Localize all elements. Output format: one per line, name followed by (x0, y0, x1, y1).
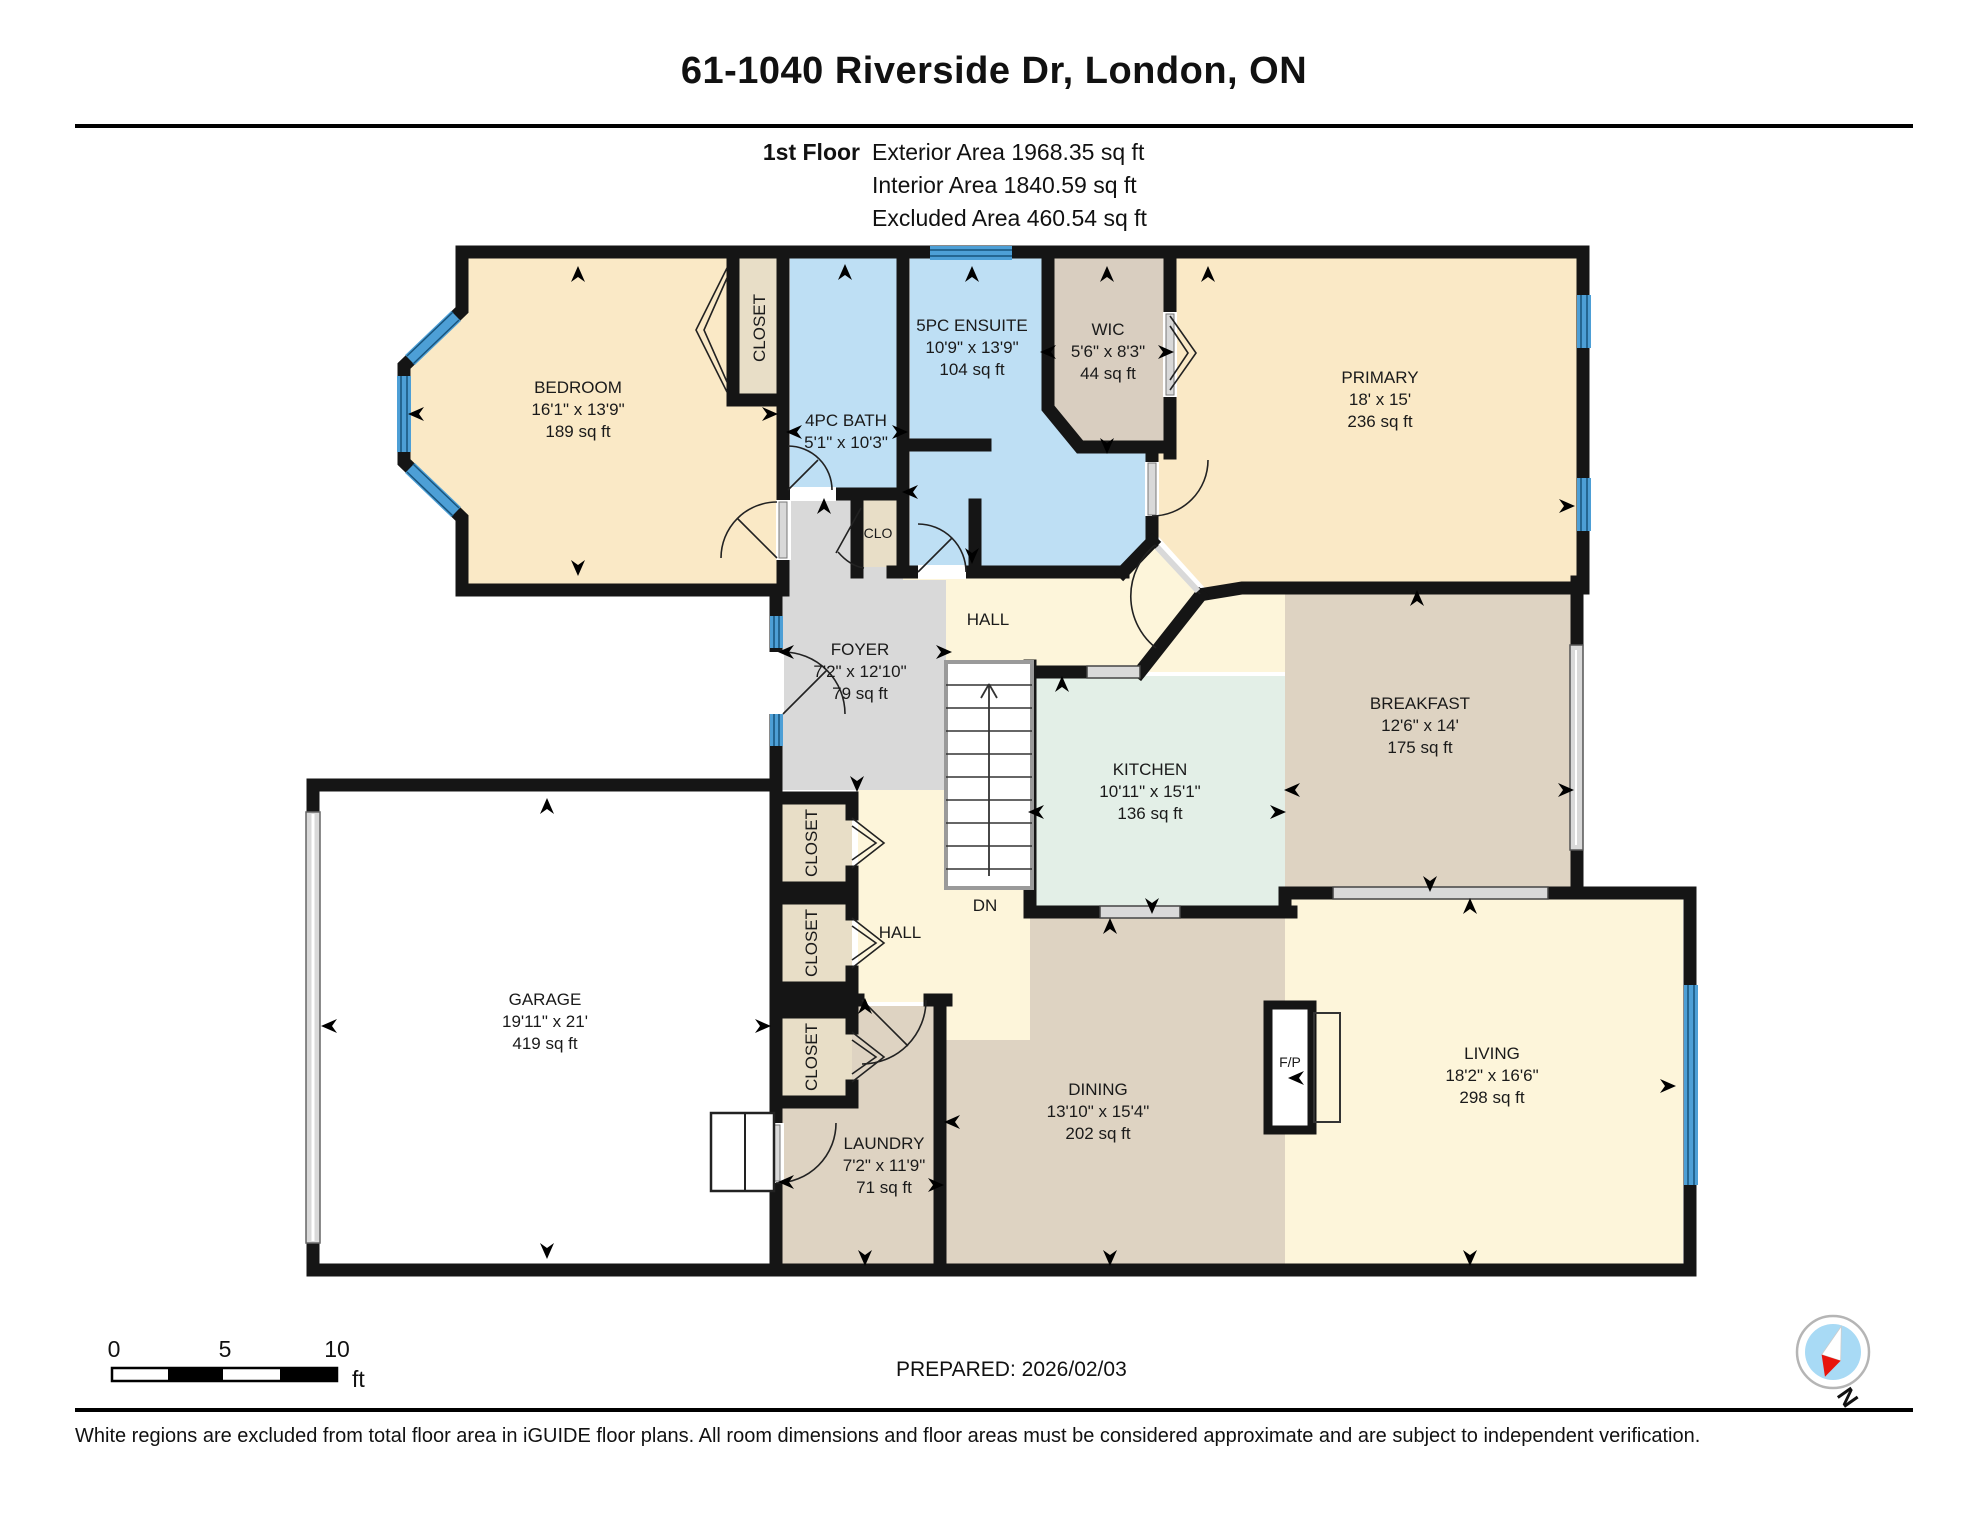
scale-tick-5: 5 (219, 1336, 232, 1363)
bath-door-gap (790, 487, 836, 501)
hall-lower-floor (858, 790, 946, 1002)
room-label-closet1: CLOSET (801, 809, 823, 877)
ensuite-door-gap (918, 565, 966, 579)
room-label-primary: PRIMARY 18' x 15' 236 sq ft (1341, 367, 1418, 433)
kitchen-window-sill (1100, 906, 1180, 918)
room-label-ensuite: 5PC ENSUITE 10'9" x 13'9" 104 sq ft (916, 315, 1027, 381)
garage-appliance (711, 1113, 774, 1191)
room-label-closet2: CLOSET (801, 909, 823, 977)
wall-primary-bottom (1205, 588, 1583, 594)
bath-floor (790, 258, 900, 490)
scale-tick-0: 0 (108, 1336, 121, 1363)
room-label-foyer: FOYER 7'2" x 12'10" 79 sq ft (813, 639, 906, 705)
foyer-window-1-icon (770, 616, 783, 648)
stairs-down-label: DN (973, 895, 998, 917)
bedroom-door-sill (779, 502, 787, 558)
disclaimer-text: White regions are excluded from total fl… (75, 1425, 1775, 1448)
room-label-kitchen: KITCHEN 10'11" x 15'1" 136 sq ft (1099, 759, 1200, 825)
room-label-hall-lower: HALL (879, 922, 922, 944)
room-label-living: LIVING 18'2" x 16'6" 298 sq ft (1445, 1043, 1538, 1109)
front-door-gap (769, 652, 784, 714)
primary-window-2-icon (1577, 478, 1591, 531)
room-label-breakfast: BREAKFAST 12'6" x 14' 175 sq ft (1370, 693, 1470, 759)
primary-window-1-icon (1577, 295, 1591, 348)
stairs (946, 662, 1032, 888)
room-label-bedroom-closet: CLOSET (749, 294, 771, 362)
room-label-bedroom: BEDROOM 16'1" x 13'9" 189 sq ft (531, 377, 624, 443)
kitchen-passthrough-sill (1087, 666, 1140, 678)
room-label-wic: WIC 5'6" x 8'3" 44 sq ft (1071, 319, 1145, 385)
room-label-garage: GARAGE 19'11" x 21' 419 sq ft (502, 989, 588, 1055)
floor-plan-page: 61-1040 Riverside Dr, London, ON 1st Flo… (0, 0, 1988, 1536)
room-label-bath: 4PC BATH 5'1" x 10'3" (804, 410, 888, 454)
primary-door-slab (1148, 463, 1156, 515)
floor-plan-svg (0, 0, 1988, 1536)
prepared-date: PREPARED: 2026/02/03 (896, 1358, 1127, 1382)
scale-bar (112, 1368, 337, 1381)
compass-icon (1797, 1316, 1869, 1388)
footer-divider (75, 1408, 1913, 1412)
room-label-laundry: LAUNDRY 7'2" x 11'9" 71 sq ft (843, 1133, 926, 1199)
ensuite-window-icon (930, 246, 1012, 260)
scale-unit: ft (352, 1366, 365, 1393)
room-label-closet3: CLOSET (801, 1023, 823, 1091)
room-label-dining: DINING 13'10" x 15'4" 202 sq ft (1047, 1079, 1150, 1145)
living-window-icon (1684, 985, 1698, 1185)
living-opening-sill (1333, 887, 1548, 899)
room-label-clo: CLO (864, 524, 893, 542)
scale-tick-10: 10 (324, 1336, 350, 1363)
foyer-window-2-icon (770, 714, 783, 746)
fireplace-label: F/P (1279, 1053, 1301, 1071)
room-label-hall-upper: HALL (967, 609, 1010, 631)
